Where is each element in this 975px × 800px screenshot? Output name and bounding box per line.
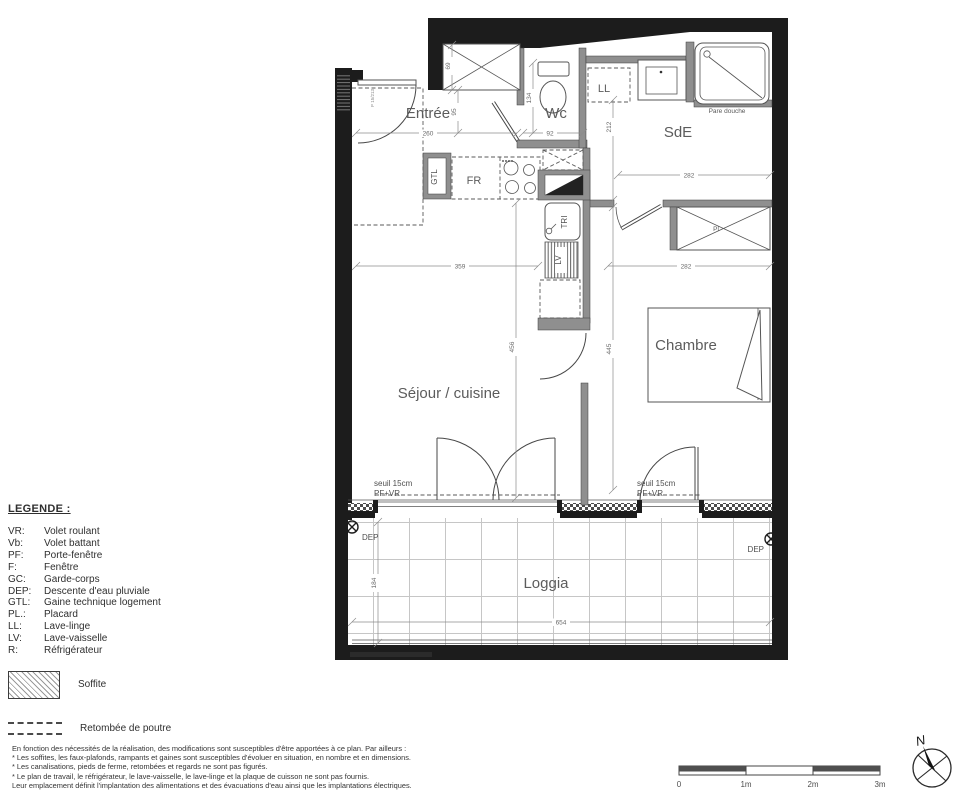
label-fr: FR bbox=[467, 175, 482, 187]
label-pfvr-right: PF+VR bbox=[637, 489, 663, 498]
scale-3m: 3m bbox=[874, 780, 885, 789]
dim-260: 260 bbox=[423, 131, 434, 138]
floorplan-page: 260 92 69 95 134 212 282 359 282 456 445… bbox=[0, 0, 975, 800]
dim-92: 92 bbox=[546, 131, 554, 138]
room-label-sde: SdE bbox=[664, 124, 692, 141]
legend-title: LEGENDE : bbox=[8, 503, 318, 515]
label-dep-right: DEP bbox=[748, 545, 764, 554]
legend-item: LV:Lave-vaisselle bbox=[8, 633, 318, 645]
label-dep-left: DEP bbox=[362, 533, 378, 542]
footnote-line: * Les soffites, les faux-plafonds, rampa… bbox=[12, 753, 712, 762]
sde-door-leaf bbox=[621, 205, 663, 231]
label-lv: LV bbox=[554, 255, 563, 265]
wc-door-leaf bbox=[492, 102, 520, 143]
chambre-door-swing bbox=[540, 333, 586, 379]
footnote-line: * Le plan de travail, le réfrigérateur, … bbox=[12, 772, 712, 781]
dim-212: 212 bbox=[606, 121, 613, 132]
legend-soffite: Soffite bbox=[8, 671, 318, 699]
label-pl: Pl bbox=[713, 226, 719, 233]
kitchen bbox=[423, 150, 590, 318]
compass-rose: N bbox=[913, 732, 951, 787]
legend-item: PL.:Placard bbox=[8, 609, 318, 621]
beam-dash-swatch bbox=[8, 713, 62, 744]
room-label-sejour: Séjour / cuisine bbox=[398, 385, 501, 402]
dim-654: 654 bbox=[556, 620, 567, 627]
dim-282-chambre: 282 bbox=[681, 264, 692, 271]
label-tri: TRI bbox=[560, 216, 569, 229]
dim-184: 184 bbox=[371, 577, 378, 588]
counter-dashed bbox=[540, 280, 580, 318]
label-pare-douche: Pare douche bbox=[709, 108, 746, 115]
soffite-hatch-swatch bbox=[8, 671, 60, 699]
label-seuil-left: seuil 15cm bbox=[374, 479, 413, 488]
label-pfvr-left: PF+VR bbox=[374, 489, 400, 498]
entry-door-leaf bbox=[358, 80, 416, 85]
legend-item: DEP:Descente d'eau pluviale bbox=[8, 586, 318, 598]
room-label-loggia: Loggia bbox=[523, 575, 569, 592]
dim-95: 95 bbox=[451, 108, 458, 116]
legend-item: LL:Lave-linge bbox=[8, 621, 318, 633]
legend-item: GC:Garde-corps bbox=[8, 574, 318, 586]
scale-2m: 2m bbox=[807, 780, 818, 789]
scale-1m: 1m bbox=[740, 780, 751, 789]
footnote-line: En fonction des nécessités de la réalisa… bbox=[12, 744, 712, 753]
legend-item: PF:Porte-fenêtre bbox=[8, 550, 318, 562]
legend-item: GTL:Gaine technique logement bbox=[8, 597, 318, 609]
legend-retombee: Retombée de poutre bbox=[8, 713, 318, 744]
legend-item: Vb:Volet battant bbox=[8, 538, 318, 550]
dim-445: 445 bbox=[606, 343, 613, 354]
legend-item: VR:Volet roulant bbox=[8, 526, 318, 538]
room-label-chambre: Chambre bbox=[655, 337, 717, 354]
french-door-swings bbox=[437, 438, 555, 500]
label-ll: LL bbox=[598, 83, 610, 95]
french-door-leaves bbox=[437, 438, 555, 500]
label-seuil-right: seuil 15cm bbox=[637, 479, 676, 488]
chambre-window-door-leaf bbox=[695, 447, 698, 500]
dim-456: 456 bbox=[509, 341, 516, 352]
footnote-line: Leur emplacement définit l'implantation … bbox=[12, 781, 712, 790]
footnotes: En fonction des nécessités de la réalisa… bbox=[12, 744, 712, 790]
toilet-tank bbox=[538, 62, 569, 76]
dim-359: 359 bbox=[455, 264, 466, 271]
north-letter: N bbox=[914, 732, 927, 749]
label-door-tag: P 15/213 bbox=[370, 89, 375, 107]
legend-item: R:Réfrigérateur bbox=[8, 645, 318, 657]
legend: LEGENDE : VR:Volet roulant Vb:Volet batt… bbox=[8, 503, 318, 744]
wall-liner-hatch bbox=[337, 74, 350, 112]
room-label-wc: Wc bbox=[545, 105, 567, 122]
sde-door-swing bbox=[616, 207, 622, 229]
dim-282-sde: 282 bbox=[684, 173, 695, 180]
legend-item: F:Fenêtre bbox=[8, 562, 318, 574]
room-label-entree: Entrée bbox=[406, 105, 450, 122]
dim-69: 69 bbox=[445, 62, 452, 70]
footnote-line: * Les canalisations, pieds de ferme, ret… bbox=[12, 762, 712, 771]
label-gtl: GTL bbox=[430, 169, 439, 185]
facade-wall bbox=[348, 495, 772, 518]
dim-134: 134 bbox=[526, 92, 533, 103]
